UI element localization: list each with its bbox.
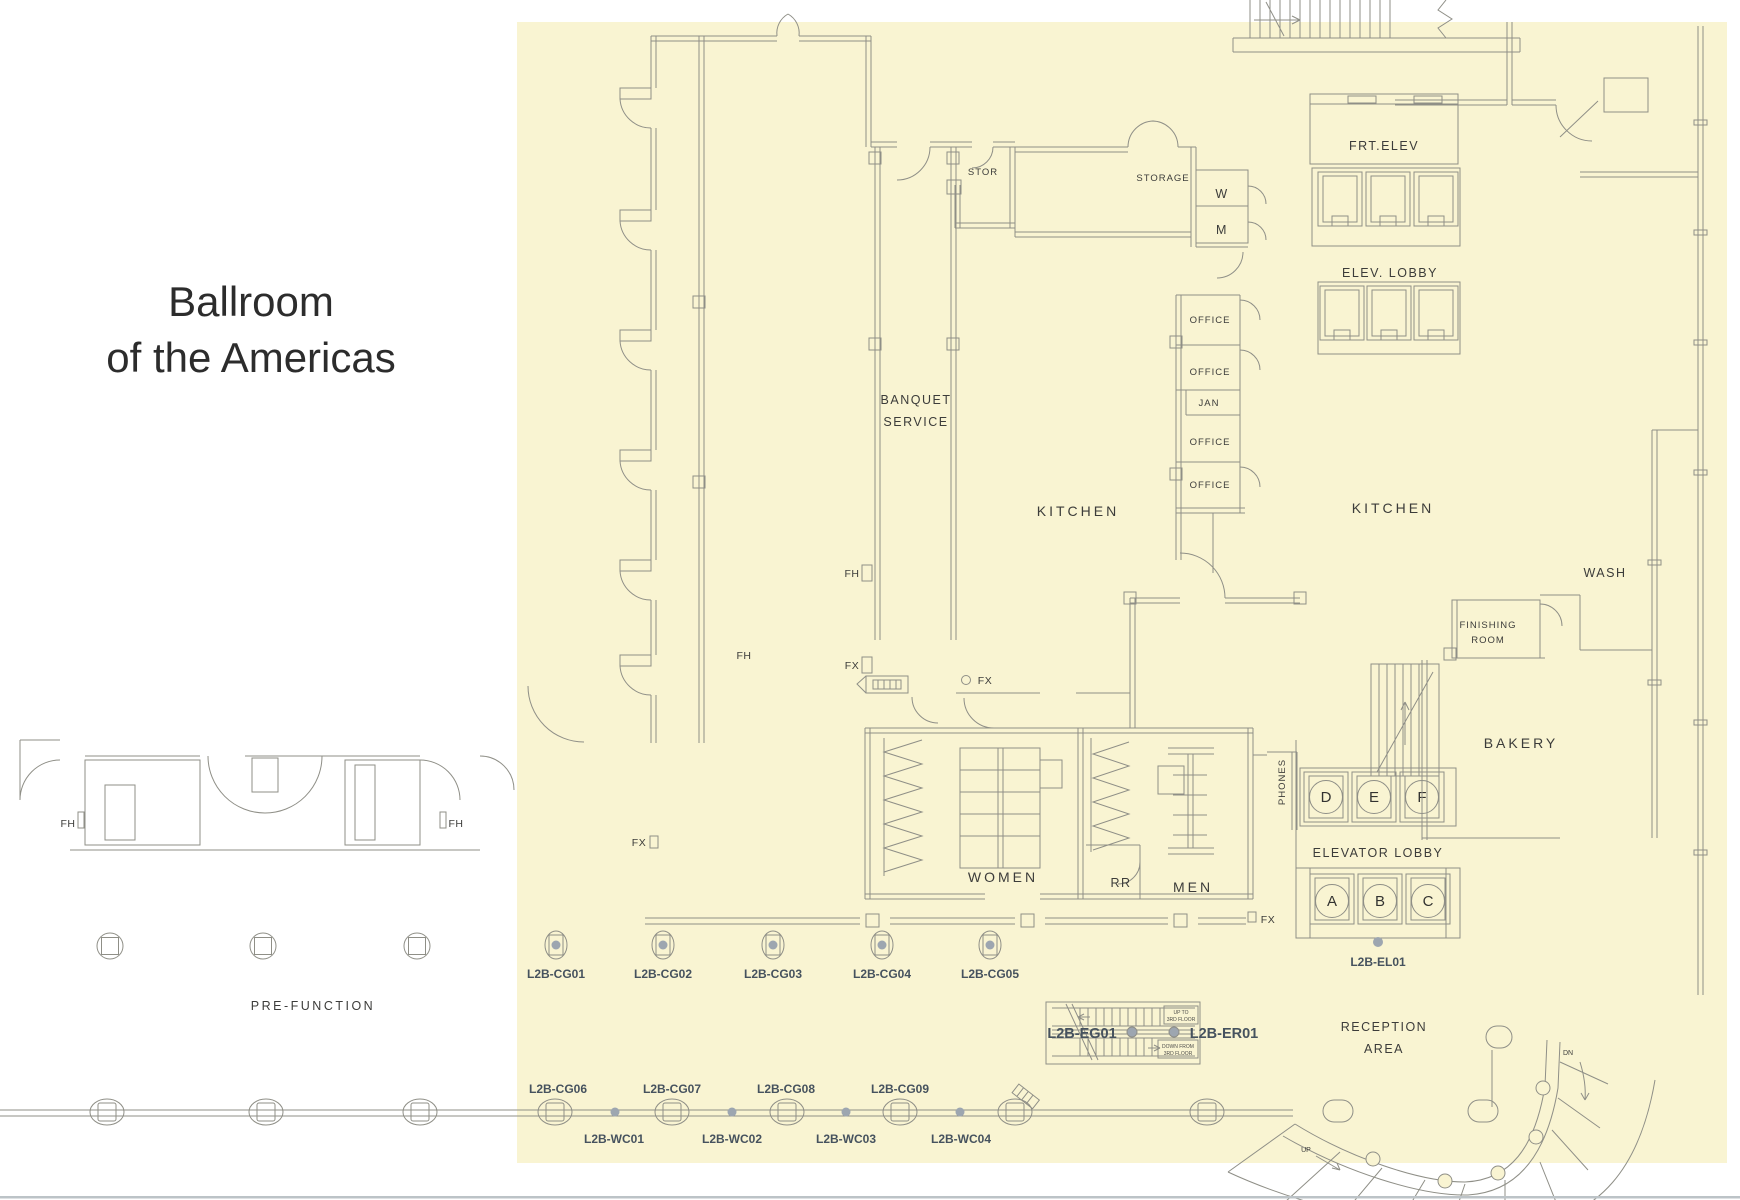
office-4-label: OFFICE <box>1190 480 1231 491</box>
code-cg06: L2B-CG06 <box>529 1082 587 1096</box>
code-el01: L2B-EL01 <box>1350 955 1406 969</box>
code-er01: L2B-ER01 <box>1190 1026 1259 1042</box>
men-label: MEN <box>1173 879 1213 895</box>
elevator-c-label: C <box>1423 893 1434 910</box>
fx-marker-lobby: FX <box>1261 914 1275 926</box>
code-cg09: L2B-CG09 <box>871 1082 929 1096</box>
banquet-label-2: SERVICE <box>883 415 948 429</box>
escalator-down-note-2: 3RD FLOOR <box>1164 1051 1193 1057</box>
fh-marker-mid: FH <box>737 650 752 662</box>
office-2-label: OFFICE <box>1190 367 1231 378</box>
code-cg08: L2B-CG08 <box>757 1082 815 1096</box>
elevator-e-label: E <box>1369 789 1379 806</box>
kitchen-left-label: KITCHEN <box>1037 503 1119 519</box>
reception-label-2: AREA <box>1364 1042 1404 1056</box>
code-wc02: L2B-WC02 <box>702 1132 762 1146</box>
elevator-d-label: D <box>1321 789 1332 806</box>
stair-dn-label: DN <box>1563 1050 1573 1057</box>
floor-plan-drawing: Ballroom of the Americas STOR STORAGE W … <box>0 0 1740 1200</box>
fx-marker-kitchen: FX <box>978 675 992 687</box>
fh-marker-corridor: FH <box>845 568 860 580</box>
jan-label: JAN <box>1199 398 1220 409</box>
code-cg04: L2B-CG04 <box>853 967 911 981</box>
elevator-a-label: A <box>1327 893 1337 910</box>
reception-label-1: RECEPTION <box>1341 1020 1427 1034</box>
elevator-lobby-label: ELEVATOR LOBBY <box>1313 846 1444 860</box>
page-title: Ballroom of the Americas <box>106 278 395 381</box>
escalator-up-note-1: UP TO <box>1173 1010 1188 1016</box>
code-wc01: L2B-WC01 <box>584 1132 644 1146</box>
finishing-room-label-2: ROOM <box>1471 635 1505 646</box>
stair-up-label: UP <box>1301 1147 1311 1154</box>
code-cg03: L2B-CG03 <box>744 967 802 981</box>
bakery-label: BAKERY <box>1484 735 1559 751</box>
bottom-rule <box>0 1196 1740 1199</box>
elev-lobby-label: ELEV. LOBBY <box>1342 266 1438 280</box>
kitchen-right-label: KITCHEN <box>1352 500 1434 516</box>
pre-function-columns <box>97 933 430 959</box>
device-dot-el01 <box>1373 937 1383 947</box>
rr-label: RR <box>1110 876 1131 890</box>
m-room-label: M <box>1216 223 1228 237</box>
escalator-down-note-1: DOWN FROM <box>1162 1044 1194 1050</box>
phones-label: PHONES <box>1277 759 1288 805</box>
women-label: WOMEN <box>968 869 1038 885</box>
code-wc03: L2B-WC03 <box>816 1132 876 1146</box>
code-cg01: L2B-CG01 <box>527 967 585 981</box>
title-line-2: of the Americas <box>106 334 395 381</box>
fh-marker-right: FH <box>449 818 464 830</box>
floor-plan-page: Ballroom of the Americas STOR STORAGE W … <box>0 0 1740 1200</box>
finishing-room-label-1: FINISHING <box>1459 620 1516 631</box>
code-wc04: L2B-WC04 <box>931 1132 991 1146</box>
escalator-up-note-2: 3RD FLOOR <box>1167 1017 1196 1023</box>
fx-marker-corridor: FX <box>845 660 859 672</box>
code-cg07: L2B-CG07 <box>643 1082 701 1096</box>
wash-label: WASH <box>1583 566 1626 580</box>
office-3-label: OFFICE <box>1190 437 1231 448</box>
code-eg01: L2B-EG01 <box>1047 1026 1116 1042</box>
stor-label: STOR <box>968 167 998 178</box>
office-1-label: OFFICE <box>1190 315 1231 326</box>
code-cg05: L2B-CG05 <box>961 967 1019 981</box>
storage-label: STORAGE <box>1136 173 1189 184</box>
code-cg02: L2B-CG02 <box>634 967 692 981</box>
w-room-label: W <box>1215 187 1228 201</box>
fh-marker-left: FH <box>61 818 76 830</box>
fx-marker-prefunction: FX <box>632 837 646 849</box>
title-line-1: Ballroom <box>168 278 334 325</box>
banquet-label-1: BANQUET <box>881 393 952 407</box>
pre-function-label: PRE-FUNCTION <box>251 999 375 1013</box>
elevator-b-label: B <box>1375 893 1385 910</box>
frt-elev-label: FRT.ELEV <box>1349 139 1419 153</box>
ballroom-vestibule <box>20 740 514 850</box>
